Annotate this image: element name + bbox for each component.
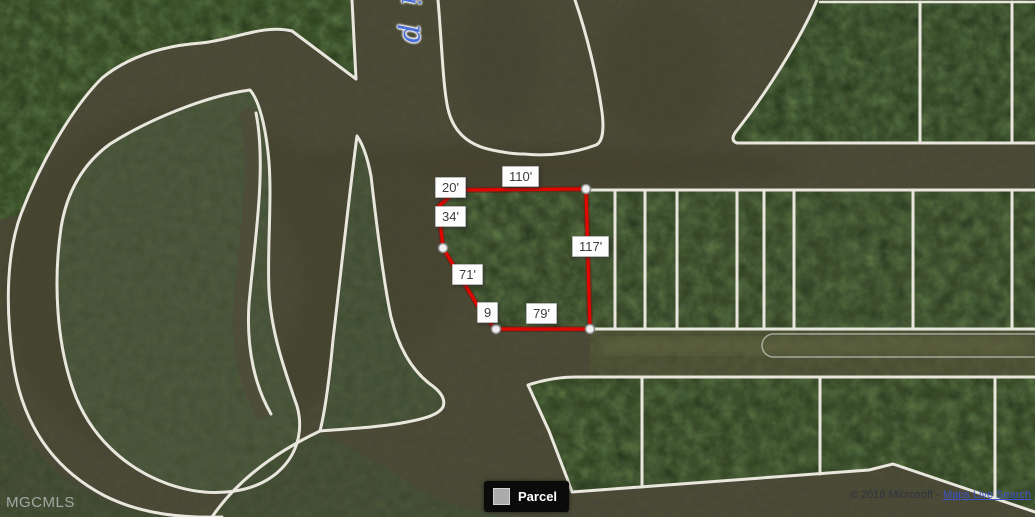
- dimension-label-34ft: 34': [435, 206, 466, 227]
- dimension-label-110ft: 110': [502, 166, 539, 187]
- dimension-label-71ft: 71': [452, 264, 483, 285]
- map-copyright: © 2018 Microsoft - Maps Live Search: [850, 489, 1031, 501]
- dimension-label-79ft: 79': [526, 303, 557, 324]
- dimension-label-20ft: 20': [435, 177, 466, 198]
- dimension-label-117ft: 117': [572, 236, 609, 257]
- mls-watermark: MGCMLS: [6, 494, 75, 511]
- parcel-swatch-icon: [493, 488, 510, 505]
- maps-live-search-link[interactable]: Maps Live Search: [943, 489, 1031, 501]
- aerial-parcel-map[interactable]: i p 20' 110' 34' 117' 71' 9 79' Parcel M…: [0, 0, 1035, 517]
- map-legend: Parcel: [484, 481, 569, 512]
- road-grass-highlight: [600, 338, 1030, 354]
- water-feature-label-letter-p: p: [396, 24, 431, 43]
- satellite-map-canvas: [0, 0, 1035, 517]
- dimension-label-9: 9: [477, 302, 498, 323]
- legend-parcel-label: Parcel: [518, 489, 557, 504]
- copyright-text: © 2018 Microsoft -: [850, 489, 943, 501]
- water-feature-label-letter-i: i: [395, 0, 425, 5]
